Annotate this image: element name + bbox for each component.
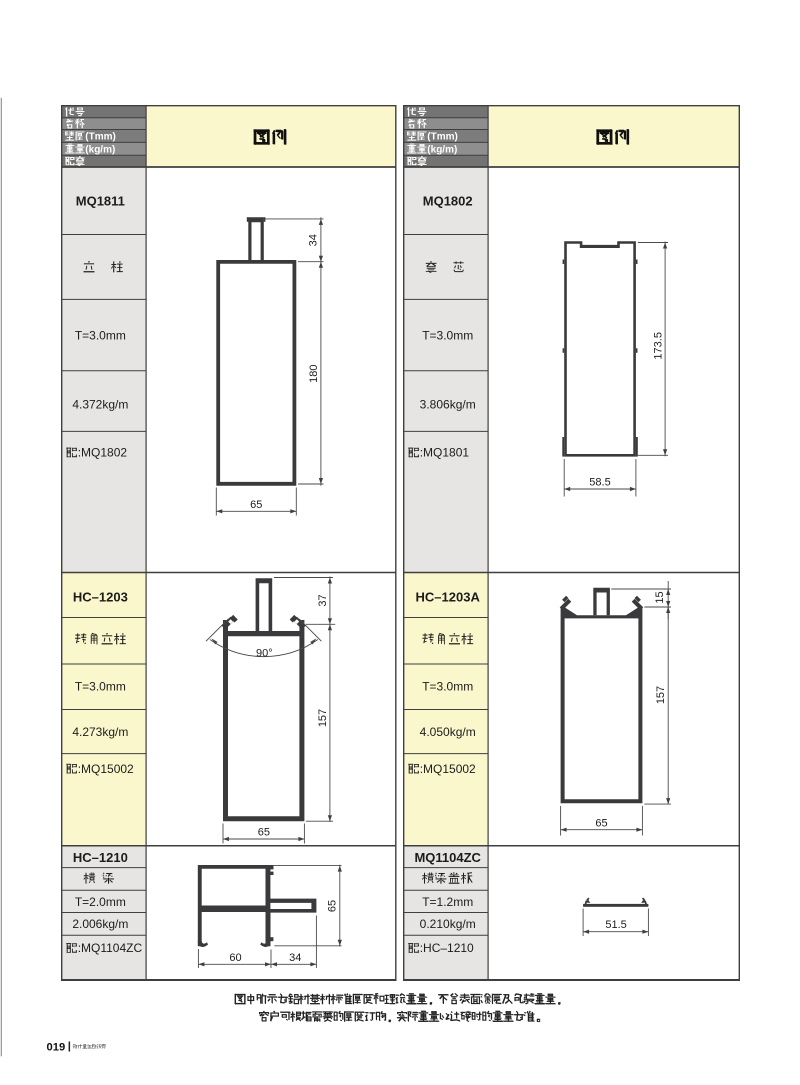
svg-text:65: 65 — [258, 827, 270, 839]
svg-text:58.5: 58.5 — [589, 477, 610, 489]
svg-text:HC–1210: HC–1210 — [73, 850, 128, 865]
svg-text:HC–1203A: HC–1203A — [416, 589, 481, 604]
svg-text:90°: 90° — [256, 647, 273, 659]
svg-text:019: 019 — [47, 1041, 66, 1053]
svg-text:34: 34 — [308, 234, 320, 246]
svg-text:HC–1203: HC–1203 — [73, 589, 128, 604]
svg-text:34: 34 — [289, 952, 301, 964]
svg-text:T=3.0mm: T=3.0mm — [422, 329, 473, 343]
svg-text:3.806kg/m: 3.806kg/m — [420, 398, 476, 412]
svg-text:T=3.0mm: T=3.0mm — [422, 680, 473, 694]
svg-text:157: 157 — [655, 686, 667, 704]
svg-text:173.5: 173.5 — [652, 332, 664, 360]
svg-text::MQ15002: :MQ15002 — [420, 762, 476, 776]
svg-text:60: 60 — [229, 952, 241, 964]
svg-text::MQ1104ZC: :MQ1104ZC — [78, 941, 143, 955]
svg-text:4.273kg/m: 4.273kg/m — [72, 725, 128, 739]
svg-text:180: 180 — [308, 365, 320, 383]
svg-text::HC–1210: :HC–1210 — [420, 941, 474, 955]
svg-text:(kg/m): (kg/m) — [427, 144, 457, 155]
svg-text:65: 65 — [250, 499, 262, 511]
svg-text:51.5: 51.5 — [605, 919, 626, 931]
svg-text::MQ15002: :MQ15002 — [78, 762, 134, 776]
svg-text:65: 65 — [327, 900, 339, 912]
svg-text:157: 157 — [317, 709, 329, 727]
svg-text:T=3.0mm: T=3.0mm — [75, 329, 126, 343]
svg-text::MQ1801: :MQ1801 — [420, 446, 470, 460]
svg-text::MQ1802: :MQ1802 — [78, 446, 128, 460]
svg-text:65: 65 — [595, 817, 607, 829]
svg-text:15: 15 — [654, 591, 666, 603]
svg-text:MQ1802: MQ1802 — [423, 193, 473, 208]
svg-text:MQ1104ZC: MQ1104ZC — [414, 850, 481, 865]
svg-text:4.050kg/m: 4.050kg/m — [420, 725, 476, 739]
svg-text:4.372kg/m: 4.372kg/m — [72, 398, 128, 412]
svg-text:2.006kg/m: 2.006kg/m — [72, 917, 128, 931]
svg-text:T=1.2mm: T=1.2mm — [422, 895, 473, 909]
svg-text:37: 37 — [317, 594, 329, 606]
svg-text:T=2.0mm: T=2.0mm — [75, 895, 126, 909]
svg-text:(Tmm): (Tmm) — [85, 132, 116, 143]
svg-text:MQ1811: MQ1811 — [76, 193, 125, 208]
svg-text:(Tmm): (Tmm) — [427, 132, 458, 143]
svg-text:0.210kg/m: 0.210kg/m — [420, 917, 476, 931]
svg-text:(kg/m): (kg/m) — [85, 144, 115, 155]
svg-text:T=3.0mm: T=3.0mm — [75, 680, 126, 694]
